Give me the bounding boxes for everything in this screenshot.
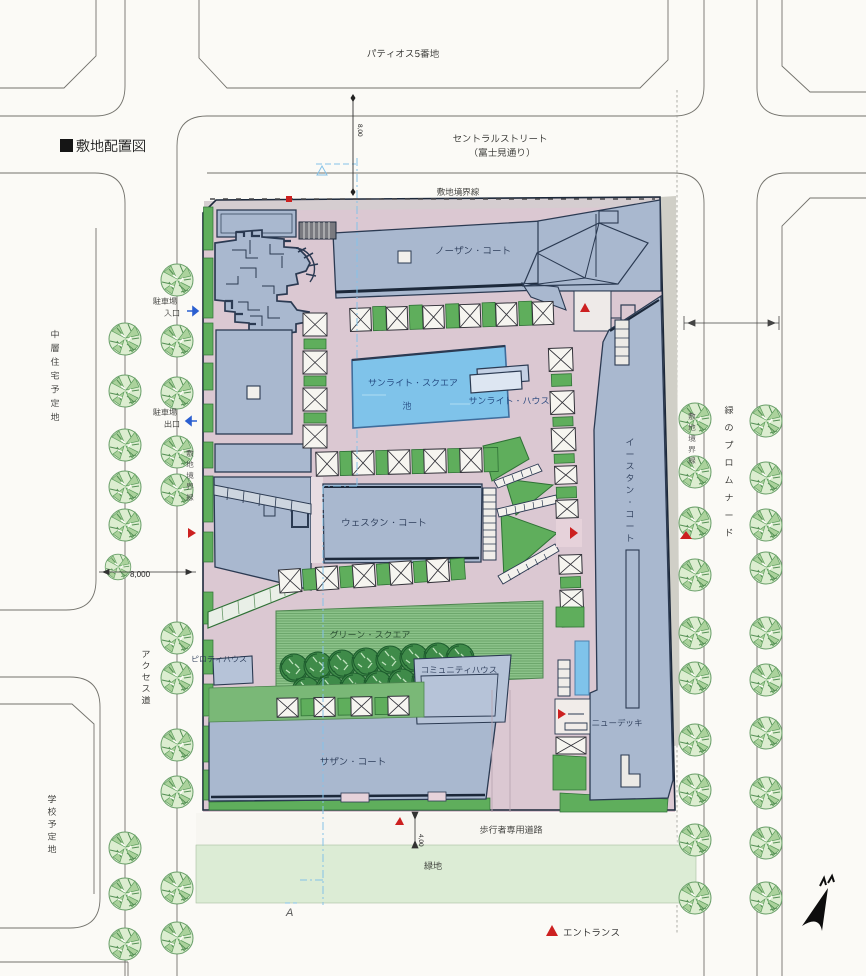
- svg-text:4,00: 4,00: [417, 834, 424, 847]
- svg-text:8,000: 8,000: [130, 570, 151, 579]
- svg-text:A: A: [285, 907, 293, 919]
- svg-text:8,00: 8,00: [356, 124, 363, 137]
